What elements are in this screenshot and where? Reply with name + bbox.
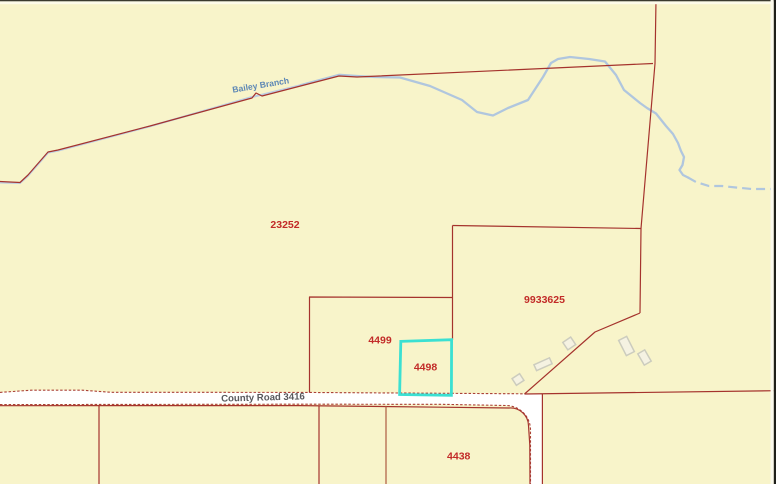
svg-text:4498: 4498	[414, 362, 438, 374]
svg-text:4438: 4438	[447, 451, 471, 463]
svg-text:County Road 3416: County Road 3416	[221, 391, 305, 404]
svg-text:4499: 4499	[368, 335, 392, 347]
svg-text:9933625: 9933625	[524, 294, 565, 306]
svg-text:23252: 23252	[270, 219, 299, 231]
